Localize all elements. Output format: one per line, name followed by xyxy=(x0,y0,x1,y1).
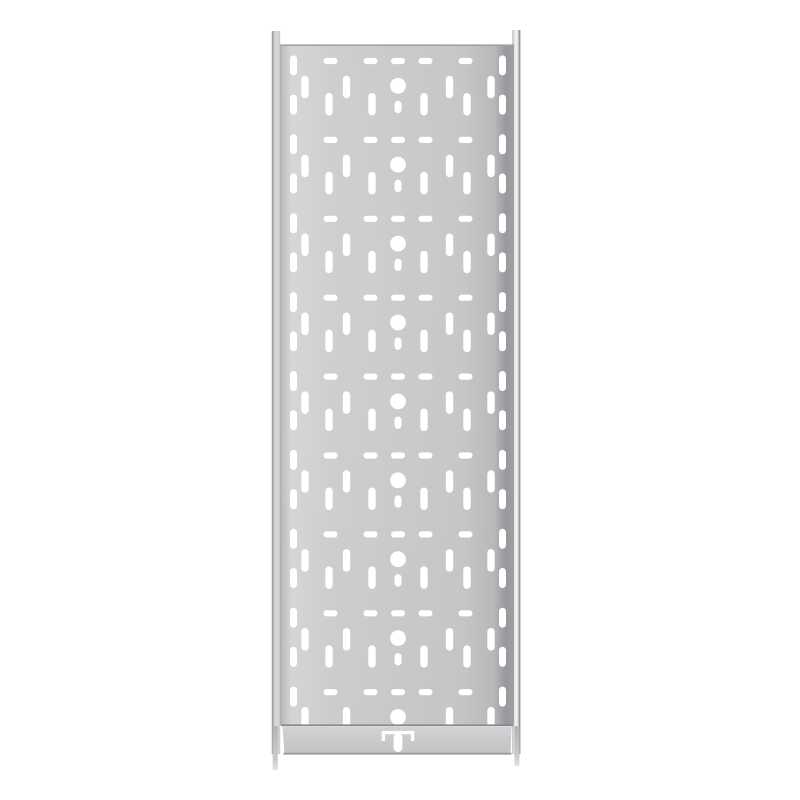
dash-slot xyxy=(391,689,405,695)
edge-column-slot xyxy=(499,134,506,154)
left-rail-pin xyxy=(273,726,278,770)
dash-slot xyxy=(459,374,473,380)
round-hole xyxy=(390,709,406,725)
center-short-slot xyxy=(395,574,402,586)
dash-slot xyxy=(324,58,338,64)
dash-slot xyxy=(419,531,433,537)
vertical-slot xyxy=(487,234,494,256)
vertical-slot xyxy=(420,566,427,589)
round-hole xyxy=(390,472,406,488)
vertical-slot xyxy=(368,330,375,353)
vertical-slot xyxy=(301,391,308,414)
dash-slot xyxy=(459,531,473,537)
edge-column-slot xyxy=(290,213,297,233)
vertical-slot xyxy=(420,330,427,353)
dash-slot xyxy=(419,374,433,380)
edge-column-slot xyxy=(499,489,506,509)
vertical-slot xyxy=(368,645,375,668)
vertical-slot xyxy=(446,155,453,178)
center-short-slot xyxy=(395,259,402,271)
dash-slot xyxy=(391,216,405,222)
vertical-slot xyxy=(446,312,453,335)
center-short-slot xyxy=(395,495,402,507)
cable-tray-product-image xyxy=(0,0,800,800)
vertical-slot xyxy=(368,487,375,510)
vertical-slot xyxy=(343,470,350,493)
edge-column-slot xyxy=(499,450,506,470)
vertical-slot xyxy=(463,409,470,432)
edge-column-slot xyxy=(499,371,506,391)
dash-slot xyxy=(391,374,405,380)
vertical-slot xyxy=(463,645,470,668)
edge-column-slot xyxy=(499,174,506,194)
round-hole xyxy=(390,551,406,567)
dash-slot xyxy=(364,58,378,64)
vertical-slot xyxy=(463,330,470,353)
vertical-slot xyxy=(301,155,308,178)
round-hole xyxy=(390,236,406,252)
dash-slot xyxy=(391,137,405,143)
vertical-slot xyxy=(446,628,453,651)
edge-column-slot xyxy=(290,174,297,194)
round-hole xyxy=(390,315,406,331)
center-short-slot xyxy=(395,416,402,428)
left-side-rail xyxy=(272,31,280,754)
vertical-slot xyxy=(446,391,453,414)
vertical-slot xyxy=(420,645,427,668)
vertical-slot xyxy=(368,172,375,195)
dash-slot xyxy=(419,58,433,64)
vertical-slot xyxy=(487,391,494,414)
edge-column-slot xyxy=(290,55,297,75)
vertical-slot xyxy=(343,76,350,99)
vertical-slot xyxy=(343,549,350,572)
center-short-slot xyxy=(395,338,402,350)
edge-column-slot xyxy=(290,371,297,391)
dash-slot xyxy=(459,137,473,143)
vertical-slot xyxy=(487,549,494,572)
round-hole xyxy=(390,78,406,94)
vertical-slot xyxy=(420,172,427,195)
edge-column-slot xyxy=(290,568,297,588)
vertical-slot xyxy=(420,251,427,274)
edge-column-slot xyxy=(290,647,297,667)
edge-column-slot xyxy=(290,410,297,430)
vertical-slot xyxy=(343,391,350,414)
dash-slot xyxy=(364,295,378,301)
vertical-slot xyxy=(368,251,375,274)
round-hole xyxy=(390,630,406,646)
vertical-slot xyxy=(463,93,470,116)
round-hole xyxy=(390,157,406,173)
dash-slot xyxy=(324,689,338,695)
vertical-slot xyxy=(301,549,308,572)
edge-column-slot xyxy=(290,529,297,549)
vertical-slot xyxy=(325,409,332,432)
edge-column-slot xyxy=(290,95,297,115)
vertical-slot xyxy=(446,76,453,99)
right-rail-pin xyxy=(514,726,519,766)
round-hole xyxy=(390,394,406,410)
vertical-slot xyxy=(487,155,494,178)
edge-column-slot xyxy=(290,331,297,351)
edge-column-slot xyxy=(499,55,506,75)
vertical-slot xyxy=(446,234,453,256)
dash-slot xyxy=(419,610,433,616)
edge-column-slot xyxy=(290,292,297,312)
dash-slot xyxy=(459,689,473,695)
vertical-slot xyxy=(301,312,308,335)
edge-column-slot xyxy=(499,213,506,233)
dash-slot xyxy=(364,452,378,458)
edge-column-slot xyxy=(290,608,297,628)
vertical-slot xyxy=(463,172,470,195)
dash-slot xyxy=(419,137,433,143)
plate-top-edge xyxy=(280,44,514,46)
vertical-slot xyxy=(368,409,375,432)
edge-column-slot xyxy=(290,489,297,509)
vertical-slot xyxy=(487,312,494,335)
dash-slot xyxy=(391,295,405,301)
vertical-slot xyxy=(368,566,375,589)
dash-slot xyxy=(391,58,405,64)
dash-slot xyxy=(324,374,338,380)
edge-column-slot xyxy=(499,608,506,628)
dash-slot xyxy=(324,295,338,301)
bottom-fold-line xyxy=(281,724,513,726)
vertical-slot xyxy=(343,155,350,178)
vertical-slot xyxy=(325,93,332,116)
dash-slot xyxy=(391,531,405,537)
product-photo-canvas xyxy=(0,0,800,800)
vertical-slot xyxy=(301,628,308,651)
vertical-slot xyxy=(420,93,427,116)
edge-column-slot xyxy=(290,252,297,272)
vertical-slot xyxy=(301,76,308,99)
edge-column-slot xyxy=(499,331,506,351)
dash-slot xyxy=(391,610,405,616)
vertical-slot xyxy=(487,470,494,493)
dash-slot xyxy=(364,610,378,616)
dash-slot xyxy=(419,689,433,695)
vertical-slot xyxy=(325,645,332,668)
vertical-slot xyxy=(446,549,453,572)
edge-column-slot xyxy=(499,568,506,588)
dash-slot xyxy=(324,531,338,537)
vertical-slot xyxy=(368,93,375,116)
edge-column-slot xyxy=(499,252,506,272)
dash-slot xyxy=(364,374,378,380)
dash-slot xyxy=(391,452,405,458)
dash-slot xyxy=(364,531,378,537)
vertical-slot xyxy=(446,470,453,493)
edge-column-slot xyxy=(290,687,297,707)
vertical-slot xyxy=(487,76,494,99)
vertical-slot xyxy=(325,251,332,274)
dash-slot xyxy=(459,216,473,222)
center-short-slot xyxy=(395,653,402,665)
vertical-slot xyxy=(325,172,332,195)
edge-column-slot xyxy=(290,134,297,154)
edge-column-slot xyxy=(499,410,506,430)
edge-column-slot xyxy=(290,450,297,470)
center-short-slot xyxy=(395,180,402,192)
edge-column-slot xyxy=(499,292,506,312)
dash-slot xyxy=(364,137,378,143)
dash-slot xyxy=(324,216,338,222)
dash-slot xyxy=(364,216,378,222)
dash-slot xyxy=(324,137,338,143)
dash-slot xyxy=(324,610,338,616)
center-short-slot xyxy=(395,101,402,113)
dash-slot xyxy=(324,452,338,458)
dash-slot xyxy=(364,689,378,695)
vertical-slot xyxy=(463,487,470,510)
vertical-slot xyxy=(487,628,494,651)
edge-column-slot xyxy=(499,687,506,707)
vertical-slot xyxy=(343,312,350,335)
vertical-slot xyxy=(325,330,332,353)
coupler-tab-stem-slot xyxy=(394,734,403,753)
dash-slot xyxy=(459,610,473,616)
vertical-slot xyxy=(343,234,350,256)
vertical-slot xyxy=(301,470,308,493)
vertical-slot xyxy=(325,487,332,510)
flange-bottom-edge xyxy=(284,753,512,755)
vertical-slot xyxy=(463,566,470,589)
dash-slot xyxy=(419,216,433,222)
vertical-slot xyxy=(420,487,427,510)
dash-slot xyxy=(459,452,473,458)
dash-slot xyxy=(419,295,433,301)
vertical-slot xyxy=(343,628,350,651)
plate-sheen-highlight xyxy=(280,45,514,725)
dash-slot xyxy=(459,58,473,64)
vertical-slot xyxy=(301,234,308,256)
edge-column-slot xyxy=(499,95,506,115)
vertical-slot xyxy=(420,409,427,432)
dash-slot xyxy=(419,452,433,458)
vertical-slot xyxy=(463,251,470,274)
edge-column-slot xyxy=(499,529,506,549)
edge-column-slot xyxy=(499,647,506,667)
dash-slot xyxy=(459,295,473,301)
vertical-slot xyxy=(325,566,332,589)
